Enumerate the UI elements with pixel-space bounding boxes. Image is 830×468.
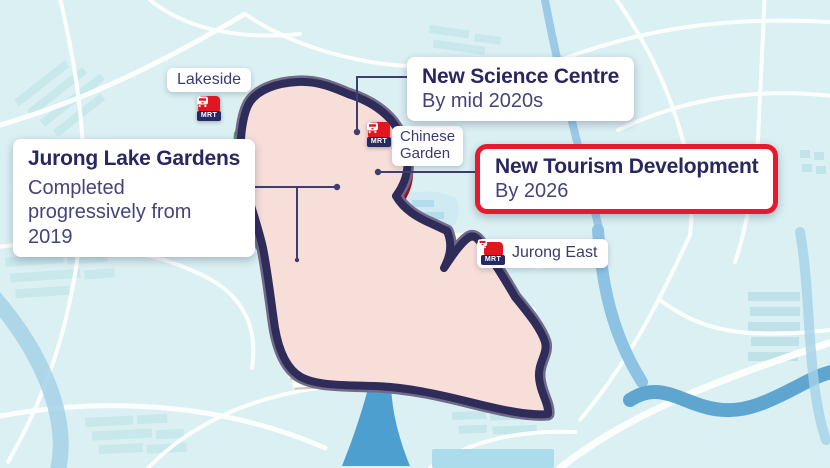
new-tourism-development-subtitle: By 2026 xyxy=(495,179,758,203)
chinese-garden-line2: Garden xyxy=(400,146,455,163)
jurong-lake-gardens-title: Jurong Lake Gardens xyxy=(28,147,240,171)
jurong-lake-gardens-line2: progressively from xyxy=(28,200,240,224)
mrt-badge: MRT xyxy=(481,255,505,265)
jurong-east-mrt-icon: MRT xyxy=(482,242,504,265)
map-infographic: Lakeside MRT MRT Chinese Garden MRT Juro… xyxy=(0,0,830,468)
jurong-east-station-name: Jurong East xyxy=(512,244,597,262)
lakeside-station-label: Lakeside xyxy=(167,68,251,92)
new-science-centre-subtitle: By mid 2020s xyxy=(422,89,619,113)
lakeside-mrt-icon: MRT xyxy=(196,96,222,121)
chinese-garden-station-label: Chinese Garden xyxy=(392,126,463,166)
mrt-badge: MRT xyxy=(197,111,221,121)
jurong-lake-gardens-line3: 2019 xyxy=(28,225,240,249)
jurong-lake-gardens-line1: Completed xyxy=(28,176,240,200)
new-science-centre-title: New Science Centre xyxy=(422,65,619,89)
chinese-garden-mrt-icon: MRT xyxy=(366,122,392,147)
mrt-badge: MRT xyxy=(367,137,391,147)
lakeside-station-name: Lakeside xyxy=(177,71,241,88)
new-tourism-development-callout: New Tourism Development By 2026 xyxy=(475,144,778,214)
new-tourism-development-title: New Tourism Development xyxy=(495,155,758,179)
jurong-east-station-label: MRT Jurong East xyxy=(477,239,608,268)
jurong-lake-gardens-callout: Jurong Lake Gardens Completed progressiv… xyxy=(13,139,255,257)
chinese-garden-line1: Chinese xyxy=(400,129,455,146)
new-science-centre-callout: New Science Centre By mid 2020s xyxy=(407,57,634,121)
